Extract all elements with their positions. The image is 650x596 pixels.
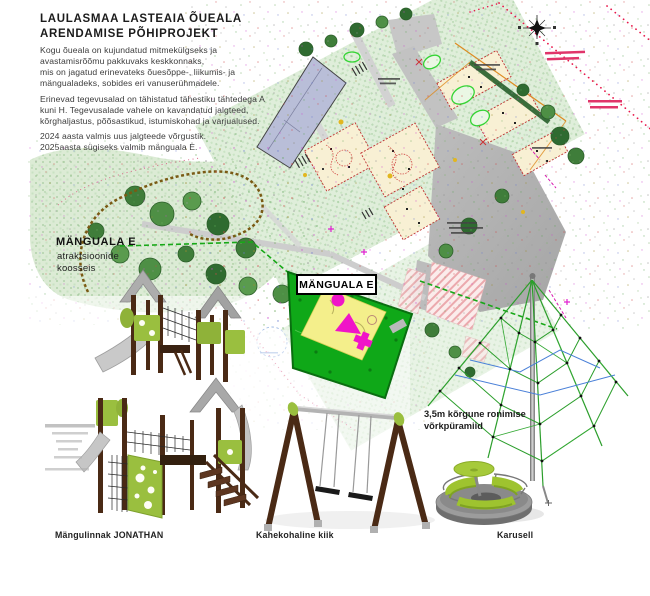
poster-title-line1: LAULASMAA LASTEAIA ÕUEALA (40, 12, 242, 27)
map-area-label: MÄNGUALA E (296, 274, 377, 295)
castle-label: Mängulinnak JONATHAN (55, 530, 163, 540)
zones-paragraph: Erinevad tegevusalad on tähistatud tähes… (40, 94, 265, 127)
pyramid-label: 3,5m kõrgune ronimise võrkpüramiid (424, 408, 526, 432)
swing-label: Kahekohaline kiik (256, 530, 334, 540)
poster-canvas: LAULASMAA LASTEAIA ÕUEALA ARENDAMISE PÕH… (0, 0, 650, 596)
intro-paragraph: Kogu õueala on kujundatud mitmekülgseks … (40, 45, 235, 89)
poster-title-line2: ARENDAMISE PÕHIPROJEKT (40, 27, 242, 42)
playarea-callout-title: MÄNGUALA E (56, 236, 136, 248)
poster-title: LAULASMAA LASTEAIA ÕUEALA ARENDAMISE PÕH… (40, 12, 242, 42)
playarea-callout-subtitle: atraktsioonide koosseis (57, 251, 119, 275)
timeline-paragraph: 2024 aasta valmis uus jalgteede võrgusti… (40, 131, 206, 153)
carousel-label: Karusell (497, 530, 533, 540)
surface-circle-shape (332, 294, 345, 307)
carousel-illustration (436, 462, 544, 526)
site-plan-graphic (0, 0, 650, 596)
